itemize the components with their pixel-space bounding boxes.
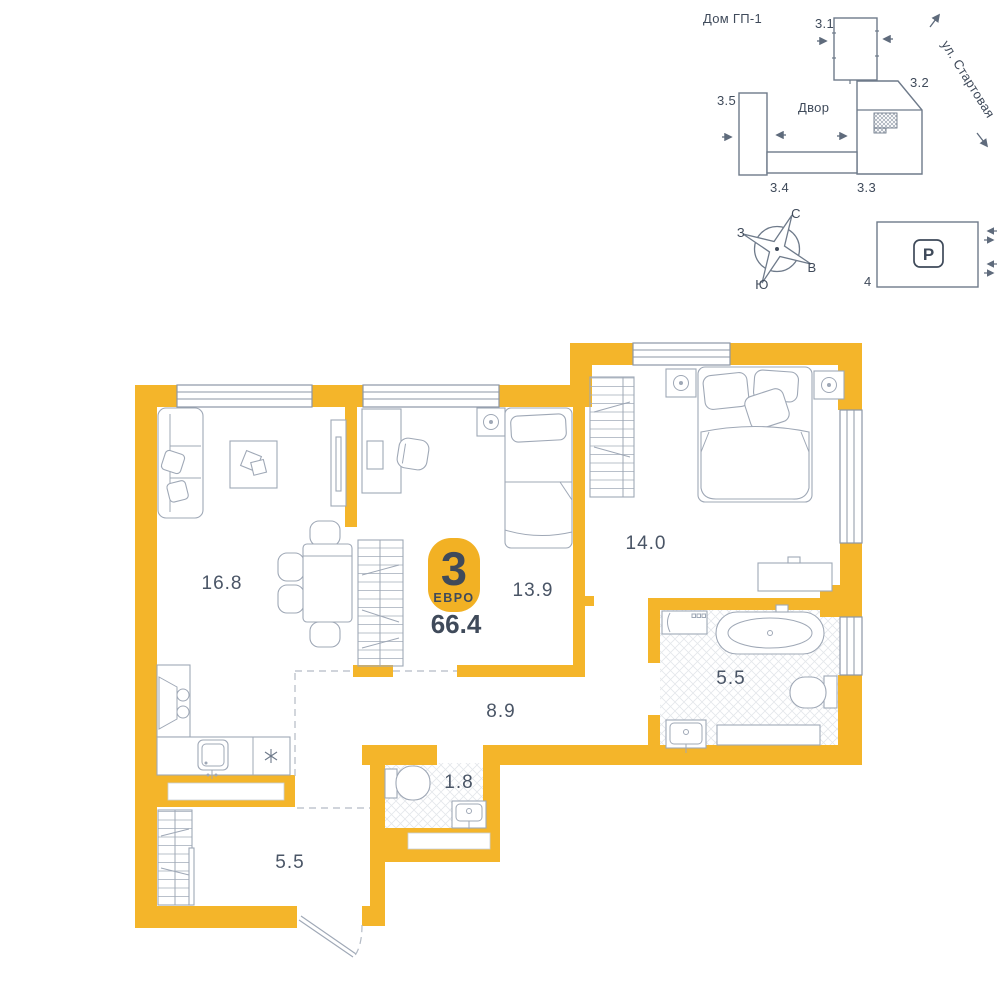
kitchen-duct-niche — [168, 783, 284, 800]
label-3-5: 3.5 — [717, 93, 736, 108]
nightstand-lamp — [477, 408, 505, 436]
bedroom-furniture — [590, 367, 844, 591]
site-plan: Дом ГП-1 3.1 3.2 3.3 3.4 3.5 Двор ул. — [703, 11, 998, 292]
parking-letter: P — [923, 245, 934, 264]
toilet — [790, 676, 837, 708]
room-area-bedroom: 14.0 — [626, 533, 667, 554]
bedroom-side-window — [840, 410, 862, 543]
bedroom-small-window — [363, 385, 499, 407]
room-area-living: 16.8 — [202, 573, 243, 594]
room-area-wc: 1.8 — [444, 772, 473, 793]
room-area-entry: 5.5 — [275, 852, 304, 873]
sofa — [158, 408, 203, 518]
living-window — [177, 385, 312, 407]
label-3-4: 3.4 — [770, 180, 789, 195]
parking-number: 4 — [864, 274, 872, 289]
double-bed — [698, 367, 812, 502]
building-3-5 — [739, 93, 767, 175]
dining-set — [278, 521, 352, 647]
single-bed — [505, 408, 572, 548]
desk — [362, 409, 430, 493]
tv-unit — [331, 420, 346, 506]
floorplan-image: Дом ГП-1 3.1 3.2 3.3 3.4 3.5 Двор ул. — [0, 0, 1000, 1000]
site-plan-title: Дом ГП-1 — [703, 11, 762, 26]
street-label: ул. Стартовая — [938, 38, 998, 121]
badge-room-count: 3 — [441, 542, 467, 595]
towel-radiator — [717, 725, 820, 745]
apartment-plan: 16.8 13.9 14.0 5.5 8.9 1.8 5.5 3 ЕВРО 66… — [135, 343, 862, 958]
badge-room-type: ЕВРО — [433, 591, 474, 605]
entry-door — [299, 916, 362, 958]
total-area: 66.4 — [431, 609, 482, 639]
wc-cabinet-niche — [408, 833, 490, 849]
compass-south: Ю — [755, 277, 768, 292]
nightstand-lamp-right — [814, 371, 844, 399]
room-area-hall: 8.9 — [486, 701, 515, 722]
current-section-marker-step — [874, 128, 886, 133]
dresser — [758, 557, 832, 591]
building-3-1 — [832, 18, 879, 84]
parking-block: P 4 — [864, 222, 997, 289]
compass-north: С — [791, 206, 801, 221]
compass-east: В — [808, 260, 817, 275]
wardrobe — [358, 540, 403, 666]
coffee-table — [230, 441, 277, 488]
bedroom-top-window — [633, 343, 730, 365]
kitchen-block — [157, 665, 290, 779]
building-3-2-3-3 — [857, 81, 922, 174]
yard-label: Двор — [798, 100, 829, 115]
wc-toilet — [385, 766, 430, 800]
building-3-4 — [767, 152, 857, 173]
current-section-marker — [874, 113, 897, 128]
parking-arrows — [984, 231, 997, 273]
apartment-badge: 3 ЕВРО 66.4 — [428, 538, 482, 639]
compass-west: З — [737, 225, 745, 240]
label-3-2: 3.2 — [910, 75, 929, 90]
washing-machine — [662, 611, 707, 634]
nightstand-lamp-left — [666, 369, 696, 397]
room-area-bathroom: 5.5 — [716, 668, 745, 689]
compass-rose: С В Ю З — [737, 206, 817, 292]
label-3-1: 3.1 — [815, 16, 834, 31]
entry-hall-furniture — [158, 810, 194, 905]
wc-sink — [452, 801, 486, 829]
bathtub — [716, 605, 824, 654]
room-area-bedroom-small: 13.9 — [513, 580, 554, 601]
living-room-furniture — [157, 408, 352, 779]
bathroom-sink — [666, 720, 706, 753]
bathroom-window — [840, 617, 862, 675]
wardrobe — [590, 377, 634, 497]
label-3-3: 3.3 — [857, 180, 876, 195]
